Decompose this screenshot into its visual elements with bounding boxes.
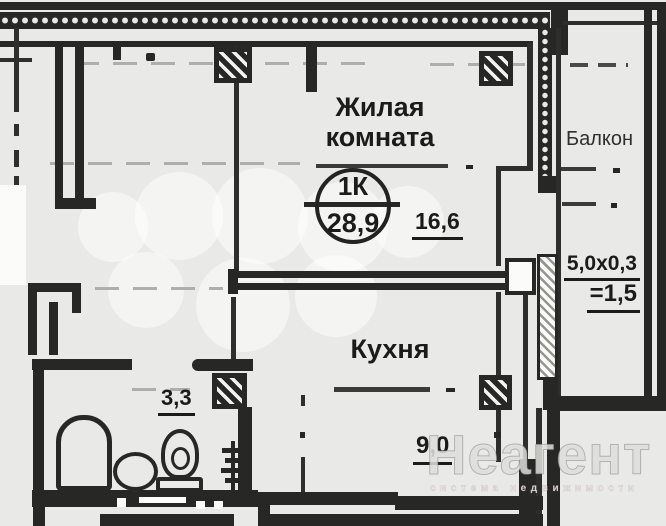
wall (14, 124, 19, 136)
wall (14, 28, 19, 112)
towel-rail-icon (222, 448, 242, 453)
kitchen-label: Кухня (340, 334, 440, 364)
wall (556, 396, 666, 411)
agency-watermark: Неагент (426, 422, 651, 487)
living-room-area: 16,6 (412, 209, 463, 240)
wall (395, 496, 543, 510)
door-opening (196, 501, 205, 509)
balcony-area: =1,5 (558, 281, 640, 313)
guide-line (50, 162, 300, 165)
door-opening (139, 497, 186, 503)
dimension-line (561, 167, 596, 171)
wall (55, 198, 96, 209)
towel-rail-icon (221, 468, 243, 473)
apartment-total-area: 28,9 (311, 208, 395, 238)
balcony-dimensions-value: 5,0х0,3 (564, 252, 640, 281)
wall (301, 457, 305, 493)
living-room-label-line2: комната (300, 122, 460, 152)
vent-shaft-icon (212, 373, 247, 409)
bathroom-area-value: 3,3 (158, 386, 195, 416)
floor-plan: 1К 28,9 Жилая комната 16,6 Кухня 9,0 3,3… (0, 0, 666, 526)
toilet-base-icon (156, 477, 203, 492)
scan-blob (108, 252, 184, 328)
dimension-mark (613, 168, 620, 173)
balcony-area-value: =1,5 (587, 281, 640, 313)
wall (32, 359, 132, 370)
wall (100, 514, 234, 526)
guide-mark (446, 388, 455, 392)
dimension-mark (611, 203, 617, 208)
bathroom-area: 3,3 (158, 386, 195, 416)
wall (33, 370, 44, 496)
door-opening-mark (95, 287, 223, 290)
balcony-label: Балкон (566, 128, 633, 150)
wall (192, 359, 253, 371)
wall-insulated (538, 28, 552, 178)
door-opening (117, 498, 126, 507)
toilet-bowl-icon (171, 447, 190, 470)
wall (258, 492, 398, 505)
wall (0, 58, 32, 62)
wall (306, 44, 317, 92)
dimension-line (562, 202, 596, 206)
wall (14, 150, 19, 167)
wall (231, 297, 236, 361)
scan-blob (135, 172, 223, 260)
wall (527, 43, 533, 170)
agency-watermark-tagline: система недвижимости (430, 483, 639, 494)
wall (538, 176, 556, 193)
guide-line (316, 164, 448, 168)
living-room-label: Жилая комната (300, 92, 460, 152)
towel-rail-icon (225, 458, 240, 463)
wall (14, 176, 19, 185)
wall (33, 507, 45, 526)
wall (301, 395, 305, 406)
wall (238, 283, 508, 290)
apartment-type: 1К (315, 172, 391, 201)
door-jamb (113, 46, 121, 60)
scan-blob (212, 168, 308, 264)
bathtub-icon (56, 415, 112, 491)
wall (644, 8, 652, 411)
door-jamb (228, 269, 238, 294)
wall (496, 170, 501, 266)
sink-icon (113, 452, 158, 491)
wall (72, 283, 81, 313)
window-sill (505, 258, 536, 295)
scan-blob (295, 255, 377, 337)
wall-insulated (0, 12, 550, 29)
vent-shaft-icon (479, 51, 513, 86)
vent-shaft-icon (479, 375, 512, 410)
door-mark (300, 432, 305, 438)
guide-mark (466, 165, 473, 169)
balcony-window-door (537, 254, 558, 380)
wall (49, 302, 58, 355)
wall (55, 43, 63, 208)
living-room-label-line1: Жилая (300, 92, 460, 122)
scan-crop (0, 185, 26, 285)
living-room-area-value: 16,6 (412, 209, 463, 240)
wall (496, 166, 533, 171)
door-mark (146, 53, 155, 61)
dimension-line (570, 63, 628, 67)
guide-line (334, 387, 430, 392)
wall (75, 43, 84, 208)
balcony-dimensions: 5,0х0,3 (558, 252, 640, 281)
vent-shaft-icon (214, 47, 252, 83)
towel-rail-icon (225, 478, 239, 483)
wall (238, 271, 508, 278)
wall (657, 8, 666, 411)
door-opening (214, 501, 223, 509)
wall (28, 283, 37, 355)
wall (268, 514, 543, 526)
